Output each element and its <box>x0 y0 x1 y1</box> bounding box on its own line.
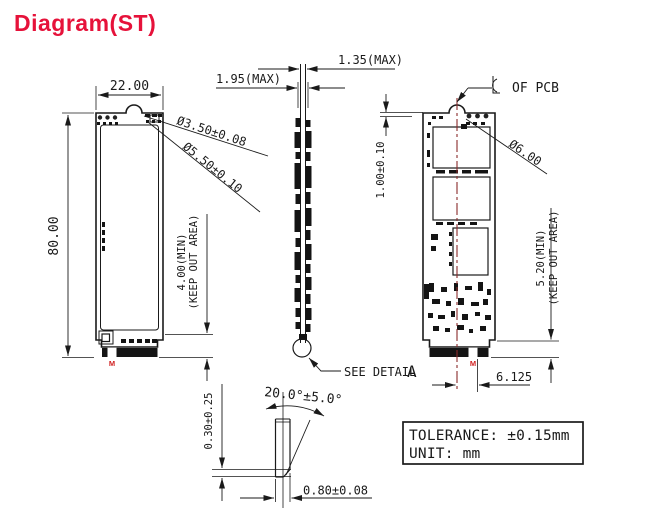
back-hole-offset-text: 1.00±0.10 <box>375 142 387 199</box>
see-detail-text: SEE DETAIL <box>344 365 416 379</box>
back-chip-3 <box>453 228 488 275</box>
front-width-dim-text: 22.00 <box>110 79 149 94</box>
front-view-outline <box>96 105 163 347</box>
front-keepout-dimension: 4.00(MIN) (KEEP OUT AREA) <box>159 214 213 381</box>
back-keepout-label-text: (KEEP OUT AREA) <box>548 211 560 306</box>
tolerance-note-box: TOLERANCE: ±0.15mm UNIT: mm <box>403 422 583 464</box>
see-detail-leader: SEE DETAIL A <box>309 358 417 381</box>
front-mount-holes <box>98 115 117 119</box>
back-hole-callout-text: Ø6.00 <box>506 137 544 169</box>
detail-thickness-text: 0.30±0.25 <box>203 393 215 450</box>
side-view <box>293 64 312 357</box>
back-keepout-dim-text: 5.20(MIN) <box>535 230 547 287</box>
detail-width-text: 0.80±0.08 <box>303 484 368 498</box>
front-bottom-component-core <box>102 334 110 342</box>
back-chip-2 <box>433 177 490 220</box>
detail-callout-circle <box>293 339 311 357</box>
side-thickness-dimensions: 1.35(MAX) 1.95(MAX) <box>216 53 403 88</box>
centerline-label-text: OF PCB <box>512 81 559 96</box>
front-hole-callout-large-text: Ø5.50±0.10 <box>180 139 245 195</box>
front-view: M <box>96 105 163 368</box>
front-keepout-dim-text: 4.00(MIN) <box>176 234 188 291</box>
drawing-page: Diagram(ST) <box>0 0 657 519</box>
back-key-notch <box>469 348 478 358</box>
back-key-offset-text: 6.125 <box>496 370 532 384</box>
back-edge-connector <box>430 348 489 357</box>
see-detail-ref-text: A <box>407 362 417 381</box>
front-keepout-label-text: (KEEP OUT AREA) <box>188 215 200 310</box>
back-key-marker: M <box>470 359 476 368</box>
drawing-canvas: M 22.00 80.00 Ø3.50±0.08 Ø5.50±0.10 <box>0 0 657 519</box>
front-inner-outline <box>101 125 159 330</box>
side-components <box>295 118 312 340</box>
back-view: M <box>423 98 495 390</box>
front-key-notch <box>108 348 117 358</box>
back-mount-holes <box>467 114 489 119</box>
back-chip-1 <box>433 127 490 168</box>
front-width-dimension: 22.00 <box>96 79 163 110</box>
front-component-pads <box>97 114 162 343</box>
side-thickness-pcb-text: 1.35(MAX) <box>338 53 403 67</box>
detail-a-view: 20.0°±5.0° 0.30±0.25 0.80±0.08 <box>203 384 372 508</box>
unit-text: UNIT: mm <box>409 446 481 462</box>
tolerance-text: TOLERANCE: ±0.15mm <box>409 428 570 444</box>
centerline-callout: OF PCB <box>457 76 559 102</box>
back-key-offset-dimension: 6.125 <box>432 359 532 392</box>
front-key-marker: M <box>109 359 115 368</box>
side-thickness-total-text: 1.95(MAX) <box>216 72 281 86</box>
centerline-symbol <box>493 76 500 93</box>
back-view-outline <box>423 105 495 347</box>
back-hole-offset-dimension: 1.00±0.10 <box>375 94 423 198</box>
back-keepout-dimension: 5.20(MIN) (KEEP OUT AREA) <box>491 208 560 383</box>
back-hole-callout: Ø6.00 <box>466 119 547 174</box>
front-height-dim-text: 80.00 <box>47 216 62 255</box>
detail-angle-text: 20.0°±5.0° <box>264 385 343 408</box>
front-height-dimension: 80.00 <box>47 113 94 358</box>
